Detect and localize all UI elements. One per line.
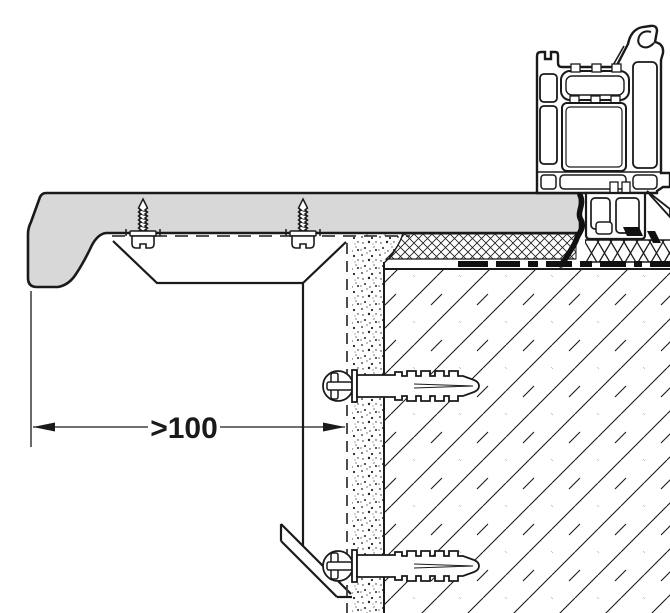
windowsill-installation-detail-drawing: >100: [0, 0, 670, 613]
thermal-insulation: [386, 234, 576, 259]
gasket-clip: [592, 64, 601, 72]
frame-chamber: [633, 175, 657, 189]
frame-chamber: [540, 106, 557, 164]
frame-main-chamber: [562, 103, 626, 171]
frame-chamber: [540, 74, 557, 102]
gasket-clip: [612, 64, 621, 72]
gasket-clip: [571, 64, 580, 72]
dimension: >100: [31, 291, 345, 447]
sub-sill-clip: [610, 182, 618, 193]
mounting-rail: [281, 283, 352, 597]
dimension-arrow-left: [33, 423, 55, 432]
insulation-under-frame: [585, 240, 670, 262]
dimension-label: >100: [150, 412, 218, 445]
drawing-page: >100: [0, 0, 670, 613]
sub-sill-clip: [622, 182, 630, 193]
sub-sill-chamber: [596, 222, 612, 234]
exterior-flashing: [647, 191, 670, 217]
wall-anchor-upper: [323, 370, 479, 402]
frame-chamber: [541, 175, 556, 189]
frame-chamber: [633, 62, 657, 168]
wall-anchor-lower: [323, 550, 479, 582]
dimension-arrow-right: [323, 423, 345, 432]
